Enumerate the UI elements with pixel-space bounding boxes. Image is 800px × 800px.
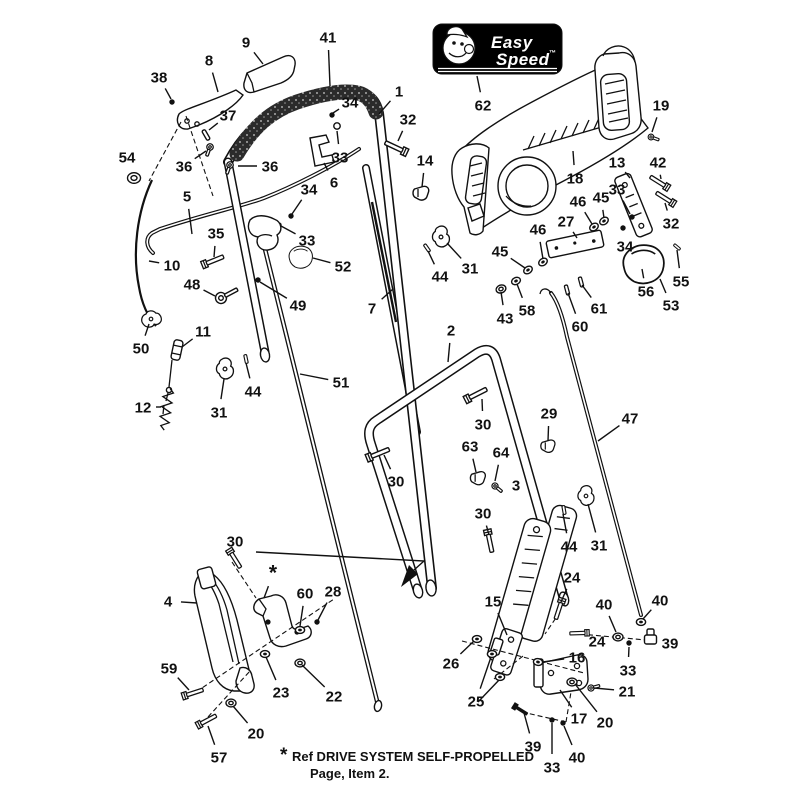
- callout-33: 33: [544, 723, 561, 777]
- callout-leader: [149, 261, 159, 263]
- callout-leader: [302, 665, 325, 687]
- part-circle-icon: [334, 123, 340, 129]
- callout-13: 13: [609, 155, 630, 179]
- badge-trademark: ™: [549, 50, 556, 57]
- callout-label: 44: [561, 539, 578, 556]
- callout-label: 40: [652, 593, 669, 610]
- callout-32: 32: [663, 203, 680, 233]
- part-clipsm-icon: [413, 186, 429, 200]
- part-spring-icon: [158, 388, 174, 431]
- callout-14: 14: [417, 153, 434, 188]
- callout-27: 27: [558, 214, 577, 239]
- part-eyebolt-icon: [214, 284, 240, 305]
- callout-1: 1: [379, 84, 403, 115]
- callout-50: 50: [133, 324, 150, 358]
- callout-22: 22: [302, 665, 342, 706]
- callout-label: 15: [485, 594, 502, 611]
- part-dot-icon: [169, 99, 174, 104]
- callout-30: 30: [384, 455, 404, 491]
- callout-leader: [477, 76, 480, 92]
- callout-label: 45: [492, 244, 509, 261]
- callout-label: 32: [663, 216, 680, 233]
- callout-25: 25: [468, 657, 491, 711]
- callout-leader: [292, 200, 302, 214]
- callout-36: 36: [238, 159, 278, 176]
- callout-leader: [266, 657, 276, 680]
- part-pin-icon: [673, 244, 681, 251]
- callout-label: 3: [512, 478, 520, 495]
- callout-label: 63: [462, 439, 479, 456]
- callout-48: 48: [184, 277, 215, 297]
- callout-label: 30: [475, 506, 492, 523]
- part-boltdark-icon: [511, 702, 529, 717]
- callout-leader: [609, 616, 616, 632]
- callout-label: 33: [332, 150, 349, 167]
- part-clip-icon: [216, 358, 233, 379]
- callout-label: 49: [290, 298, 307, 315]
- callout-49: 49: [260, 282, 306, 315]
- callout-leader: [333, 109, 339, 113]
- callout-label: 12: [135, 400, 152, 417]
- callout-leader: [246, 363, 250, 378]
- callout-label: 42: [650, 155, 667, 172]
- callout-label: 64: [493, 445, 510, 462]
- callout-30: 30: [227, 534, 244, 551]
- part-nut-icon: [510, 276, 521, 286]
- callout-leader: [665, 203, 667, 211]
- part-washer-icon: [226, 699, 236, 707]
- footnote-line2: Page, Item 2.: [310, 766, 389, 781]
- cable-clamp: [310, 135, 334, 166]
- callout-label: 59: [161, 661, 178, 678]
- callout-label: 7: [368, 301, 376, 318]
- part-trigger-icon: [248, 216, 280, 250]
- callout-31: 31: [447, 243, 478, 278]
- callout-label: 34: [342, 95, 359, 112]
- callout-leader: [560, 690, 572, 707]
- callout-label: 5: [183, 189, 191, 206]
- callout-60: 60: [297, 586, 314, 627]
- callout-leader: [660, 175, 661, 179]
- part-nut-icon: [487, 651, 496, 658]
- callout-12: 12: [135, 400, 161, 417]
- part-dot-icon: [549, 717, 554, 722]
- part-clipsm-icon: [541, 440, 555, 452]
- part-ring-icon: [128, 173, 141, 184]
- part-screw-icon: [587, 683, 600, 692]
- callout-leader: [447, 243, 461, 258]
- callout-2: 2: [447, 323, 455, 363]
- callout-leader: [254, 52, 263, 64]
- callout-31: 31: [211, 379, 228, 422]
- callout-leader: [213, 73, 218, 92]
- callout-63: 63: [462, 439, 479, 473]
- callout-leader: [165, 88, 171, 99]
- callout-label: 35: [208, 226, 225, 243]
- callout-52: 52: [313, 258, 351, 276]
- foam-pad: [244, 56, 295, 93]
- part-bolt-icon: [195, 712, 218, 729]
- callout-leader: [208, 726, 215, 745]
- part-screw-icon: [204, 143, 214, 157]
- callout-label: 6: [330, 175, 338, 192]
- part-nut-icon: [495, 674, 504, 681]
- callout-leader: [300, 374, 328, 380]
- callout-58: 58: [517, 284, 535, 320]
- callout-leader: [214, 246, 215, 257]
- control-cable: [136, 180, 172, 414]
- callout-leader: [594, 688, 614, 690]
- callout-38: 38: [151, 70, 171, 100]
- callout-label: 31: [211, 405, 228, 422]
- callout-leader: [221, 379, 224, 399]
- callout-label: 27: [558, 214, 575, 231]
- callout-leader: [677, 250, 679, 268]
- part-bolt-icon: [463, 386, 488, 404]
- part-clip-icon: [141, 310, 162, 328]
- callout-4: 4: [164, 594, 197, 611]
- callout-label: 20: [597, 715, 614, 732]
- callout-45: 45: [593, 190, 610, 219]
- easy-speed-badge: Easy Speed ™: [433, 24, 562, 74]
- callout-leader: [480, 657, 491, 689]
- callout-leader: [585, 212, 592, 224]
- callout-label: 40: [569, 750, 586, 767]
- callout-leader: [318, 603, 327, 620]
- callout-label: 8: [205, 53, 213, 70]
- part-bolt-icon: [570, 630, 590, 637]
- callout-label: 44: [432, 269, 449, 286]
- callout-5: 5: [183, 189, 192, 235]
- callout-46: 46: [530, 222, 547, 260]
- callout-leader: [643, 610, 651, 619]
- callout-label: 60: [572, 319, 589, 336]
- callout-label: 52: [335, 259, 352, 276]
- callout-leader: [384, 455, 391, 469]
- callout-leader: [564, 726, 572, 745]
- callout-leader: [398, 131, 403, 141]
- callout-label: 46: [570, 194, 587, 211]
- callout-label: 62: [475, 98, 492, 115]
- callout-label: 45: [593, 190, 610, 207]
- callout-label: 48: [184, 277, 201, 294]
- part-pin-icon: [423, 244, 430, 253]
- callout-label: 16: [569, 650, 586, 667]
- callout-leader: [588, 504, 596, 532]
- callout-55: 55: [673, 250, 690, 291]
- callout-label: 33: [620, 663, 637, 680]
- callout-11: 11: [182, 324, 211, 348]
- callout-label: 18: [567, 171, 584, 188]
- callout-44: 44: [428, 251, 449, 286]
- callout-leader: [473, 459, 476, 472]
- callout-leader: [548, 426, 549, 441]
- callout-label: 33: [299, 233, 316, 250]
- callout-label: 14: [417, 153, 434, 170]
- footnote: * Ref DRIVE SYSTEM SELF-PROPELLED Page, …: [280, 745, 534, 781]
- part-washer-icon: [613, 633, 623, 641]
- part-bolt-icon: [484, 529, 496, 553]
- part-fitting-icon: [645, 629, 657, 644]
- part-pin-icon: [202, 129, 211, 140]
- part-dot-icon: [629, 214, 634, 219]
- callout-leader: [598, 426, 619, 441]
- callout-label: 41: [320, 30, 337, 47]
- callout-label: *: [269, 562, 278, 585]
- dashed-axis: [232, 562, 256, 598]
- callout-40: 40: [564, 726, 585, 767]
- part-clipsm-icon: [470, 472, 485, 485]
- callout-label: 30: [475, 417, 492, 434]
- callout-leader: [540, 242, 543, 259]
- part-nut-icon: [295, 627, 304, 634]
- part-nut-icon: [522, 265, 533, 276]
- part-nut-icon: [636, 619, 645, 626]
- callout-label: 50: [133, 341, 150, 358]
- part-screw-icon: [491, 482, 504, 494]
- callout-label: 34: [617, 239, 634, 256]
- callout-40: 40: [643, 593, 668, 620]
- callout-label: 26: [443, 656, 460, 673]
- callout-40: 40: [596, 597, 616, 633]
- callout-label: 25: [468, 694, 485, 711]
- callout-leader: [582, 285, 591, 298]
- callout-33: 33: [281, 226, 315, 250]
- callout-54: 54: [119, 150, 136, 167]
- part-dot-icon: [288, 213, 293, 218]
- callout-label: 60: [297, 586, 314, 603]
- callout-20: 20: [233, 706, 264, 743]
- callout-label: 9: [242, 35, 250, 52]
- callout-label: 22: [326, 689, 343, 706]
- part-bolt-icon: [552, 597, 566, 620]
- upper-handle-left-tube: [228, 162, 271, 363]
- badge-brand-line2: Speed: [496, 50, 550, 69]
- callout-31: 31: [588, 504, 607, 555]
- callout-label: 46: [530, 222, 547, 239]
- footnote-line1: Ref DRIVE SYSTEM SELF-PROPELLED: [292, 749, 534, 764]
- callout-30: 30: [475, 399, 492, 434]
- callout-label: 54: [119, 150, 136, 167]
- callout-label: 30: [388, 474, 405, 491]
- callout-label: 39: [662, 636, 679, 653]
- callout-leader: [313, 258, 330, 263]
- callout-label: 24: [589, 634, 606, 651]
- callout-leader: [233, 706, 248, 723]
- callout-label: 31: [591, 538, 608, 555]
- parts-diagram: 3889413736365434132336146219181342334645…: [0, 0, 800, 800]
- callout-label: 58: [519, 303, 536, 320]
- callout-47: 47: [598, 411, 638, 442]
- part-pin-icon: [564, 285, 570, 295]
- callout-61: 61: [582, 285, 607, 318]
- part-pin-icon: [244, 354, 249, 363]
- callout-leader: [329, 50, 330, 86]
- callout-24: 24: [589, 634, 606, 651]
- callout-41: 41: [320, 30, 337, 87]
- part-clip-icon: [578, 486, 594, 506]
- callout-10: 10: [149, 258, 180, 275]
- callout-23: 23: [266, 657, 289, 702]
- callout-leader: [652, 117, 657, 132]
- callout-label: 4: [164, 594, 173, 611]
- part-dot-icon: [255, 277, 260, 282]
- callout-leader: [281, 226, 296, 234]
- callout-label: 61: [591, 301, 608, 318]
- callout-label: 33: [609, 182, 626, 199]
- callout-leader: [178, 678, 189, 690]
- callout-leader: [495, 465, 498, 481]
- callout-33: 33: [620, 647, 637, 680]
- callout-leader: [422, 173, 424, 187]
- callout-label: 51: [333, 375, 350, 392]
- callout-44: 44: [245, 363, 262, 401]
- callout-33: 33: [332, 131, 349, 167]
- callout-34: 34: [292, 182, 318, 215]
- part-bolt-icon: [648, 174, 670, 192]
- part-dot-icon: [626, 640, 631, 645]
- callout-34: 34: [617, 239, 634, 256]
- callout-label: 29: [541, 406, 558, 423]
- callout-62: 62: [475, 76, 492, 115]
- callout-leader: [337, 131, 339, 144]
- callout-leader: [300, 606, 303, 626]
- callout-leader: [181, 602, 197, 603]
- callout-45: 45: [492, 244, 525, 269]
- part-bolt-icon: [181, 686, 204, 700]
- callout-label: 55: [673, 274, 690, 291]
- belt-guard: [194, 566, 254, 693]
- callout-label: 37: [220, 108, 237, 125]
- callout-label: 23: [273, 685, 290, 702]
- callout-8: 8: [205, 53, 218, 93]
- callout-label: 28: [325, 584, 342, 601]
- callout-label: 57: [211, 750, 228, 767]
- callout-label: 43: [497, 311, 514, 328]
- callout-leader: [524, 713, 530, 733]
- callout-label: 53: [663, 298, 680, 315]
- part-dot-icon: [314, 619, 319, 624]
- part-screw-icon: [647, 133, 660, 142]
- callout-59: 59: [161, 661, 189, 691]
- part-nut-icon: [260, 651, 269, 658]
- dashed-axis: [522, 712, 566, 722]
- callout-label: 30: [227, 534, 244, 551]
- callout-29: 29: [541, 406, 558, 442]
- callout-leader: [428, 251, 434, 264]
- callout-label: 17: [571, 711, 588, 728]
- callout-label: 40: [596, 597, 613, 614]
- callout-label: 1: [395, 84, 403, 101]
- part-barrel-icon: [171, 339, 184, 360]
- callout-label: 38: [151, 70, 168, 87]
- callout-leader: [603, 210, 604, 218]
- callout-label: 19: [653, 98, 670, 115]
- callout-leader: [448, 343, 450, 362]
- callout-leader: [511, 258, 525, 268]
- callout-leader: [568, 293, 576, 314]
- callout-label: 33: [544, 760, 561, 777]
- callout-35: 35: [208, 226, 225, 258]
- callout-label: 2: [447, 323, 455, 340]
- callout-label: 24: [564, 570, 581, 587]
- callout-label: 32: [400, 112, 417, 129]
- callout-51: 51: [300, 374, 349, 392]
- callout-64: 64: [493, 445, 510, 482]
- callout-32: 32: [398, 112, 416, 142]
- part-dot-icon: [620, 225, 625, 230]
- part-dot-icon: [560, 720, 565, 725]
- part-bolt-icon: [201, 253, 225, 269]
- callout-label: 21: [619, 684, 636, 701]
- callout-label: 13: [609, 155, 626, 172]
- callout-label: 20: [248, 726, 265, 743]
- callout-60: 60: [568, 293, 588, 336]
- callout-label: 11: [195, 324, 211, 341]
- callout-star: *: [264, 562, 278, 599]
- footnote-star: *: [280, 745, 288, 766]
- callout-leader: [501, 292, 503, 305]
- callout-label: 56: [638, 284, 655, 301]
- callout-leader: [517, 284, 522, 298]
- callout-label: 10: [164, 258, 181, 275]
- callout-label: 31: [462, 261, 479, 278]
- callout-3: 3: [512, 478, 520, 495]
- callout-label: 36: [176, 159, 193, 176]
- callout-19: 19: [652, 98, 669, 133]
- callout-9: 9: [242, 35, 263, 65]
- callout-57: 57: [208, 726, 227, 767]
- callout-leader: [204, 290, 215, 296]
- callout-label: 47: [622, 411, 639, 428]
- callout-39: 39: [662, 636, 679, 653]
- callout-label: 36: [262, 159, 279, 176]
- callout-leader: [460, 641, 474, 654]
- callout-label: 44: [245, 384, 262, 401]
- callout-label: 34: [301, 182, 318, 199]
- callout-leader: [209, 123, 218, 130]
- callout-leader: [660, 279, 666, 293]
- callout-26: 26: [443, 641, 474, 673]
- callout-43: 43: [497, 292, 514, 328]
